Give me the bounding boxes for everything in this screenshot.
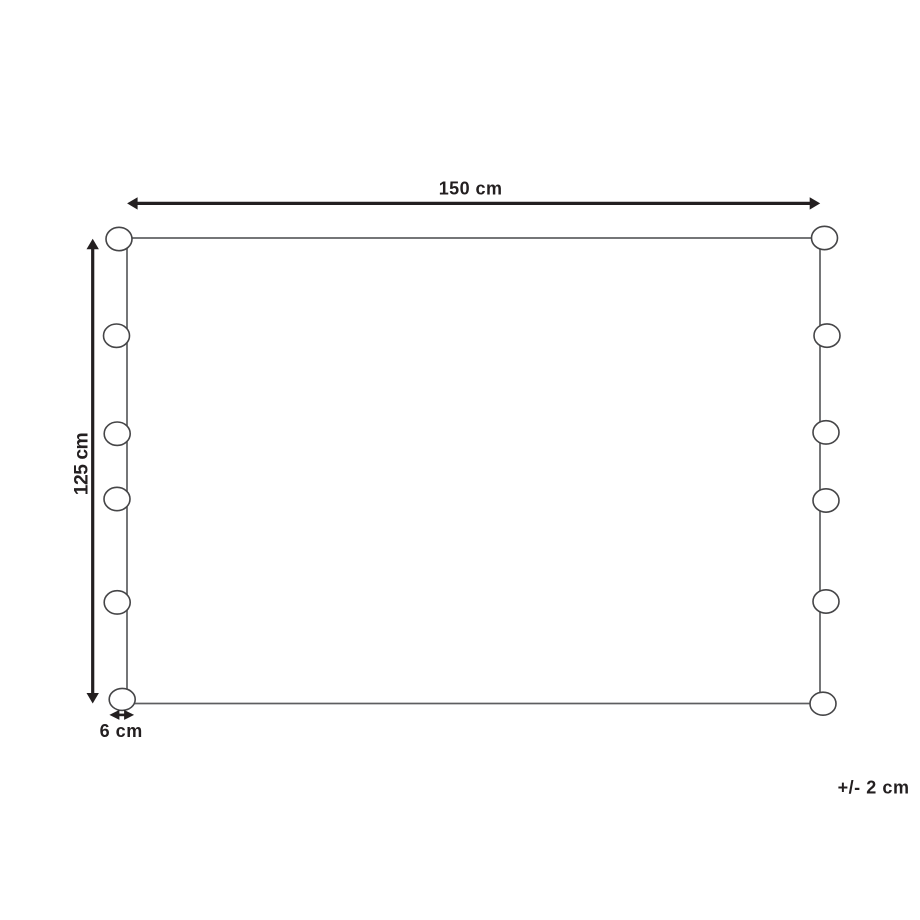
svg-text:150 cm: 150 cm bbox=[439, 179, 503, 199]
svg-text:6 cm: 6 cm bbox=[100, 721, 143, 741]
svg-text:125 cm: 125 cm bbox=[72, 433, 93, 495]
svg-text:+/- 2 cm: +/- 2 cm bbox=[838, 777, 910, 797]
